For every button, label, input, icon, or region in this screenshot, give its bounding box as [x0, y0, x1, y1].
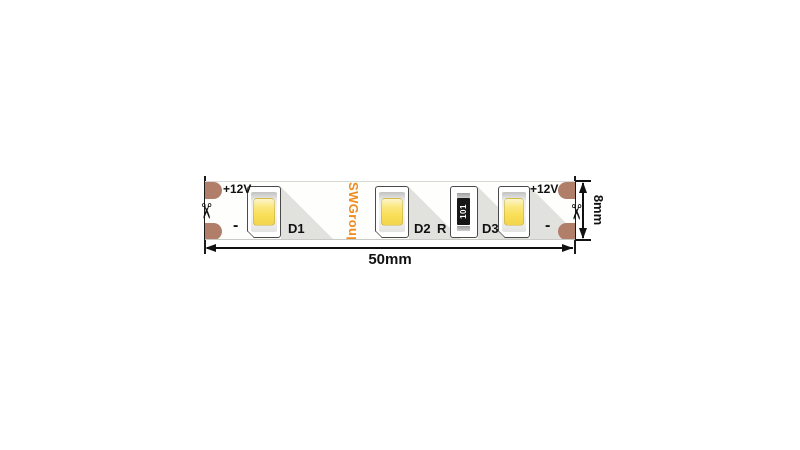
minus-label-right: -	[545, 217, 550, 235]
solder-pad-right-bottom	[558, 223, 575, 240]
resistor-body: 101	[457, 198, 470, 225]
brand-logo-text: SWGroup	[346, 182, 360, 240]
solder-pad-right-top	[558, 182, 575, 199]
led-package-d3	[498, 186, 530, 238]
led-chip-d3	[504, 198, 524, 226]
led-package-d2	[375, 186, 409, 238]
dimension-line-length	[207, 247, 573, 249]
solder-pad-left-top	[205, 182, 222, 199]
voltage-label-right: +12V	[530, 182, 558, 196]
led-chip-d1	[253, 198, 275, 226]
resistor-package: 101	[450, 186, 478, 238]
scissors-icon-right: ✂	[562, 199, 588, 225]
extension-line-bottom	[576, 239, 591, 241]
dimension-height-value: 8mm	[591, 192, 605, 228]
solder-pad-left-bottom	[205, 223, 222, 240]
led-package-d1	[247, 186, 281, 238]
dimension-arrow-up	[579, 182, 587, 193]
led-strip-diagram: ✂ ✂ 101	[0, 0, 800, 450]
voltage-label-left: +12V	[223, 182, 251, 196]
dimension-arrow-left	[205, 244, 216, 252]
led-label-d3: D3	[482, 221, 499, 236]
resistor-label: R	[437, 221, 446, 236]
resistor-cap-bottom	[457, 226, 470, 231]
led-label-d1: D1	[288, 221, 305, 236]
minus-label-left: -	[233, 217, 238, 235]
dimension-arrow-down	[579, 228, 587, 239]
resistor-marking: 101	[450, 205, 477, 218]
led-chip-d2	[381, 198, 403, 226]
led-strip-body: 101 +12V - D1 SWGroup D2 R D3 +12V -	[205, 181, 575, 240]
scissors-icon-left: ✂	[192, 198, 218, 224]
dimension-length-value: 50mm	[330, 251, 450, 268]
led-label-d2: D2	[414, 221, 431, 236]
dimension-arrow-right	[562, 244, 573, 252]
